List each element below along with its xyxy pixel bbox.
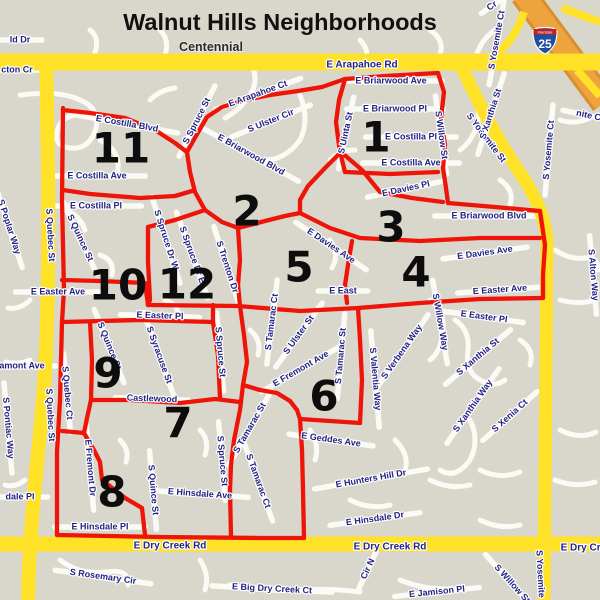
street-label: E East: [329, 285, 357, 295]
region-number: 3: [376, 203, 405, 252]
street-label: E Briarwood Ave: [355, 75, 426, 85]
map-title: Walnut Hills Neighborhoods: [123, 9, 437, 35]
shield-banner: Interstate: [538, 30, 553, 34]
street-label: E Briarwood Blvd: [451, 210, 526, 220]
region-number: 11: [92, 124, 150, 173]
street-label: dale Pl: [5, 491, 34, 501]
street-label: E Costilla Pl: [385, 131, 437, 141]
street-label: ld Dr: [10, 34, 31, 44]
region-number: 5: [284, 243, 313, 292]
street-label: amont Ave: [0, 360, 45, 370]
street-label: E Arapahoe Rd: [326, 60, 397, 71]
region-number: 7: [163, 399, 192, 448]
map-image: Interstate 25 E Arapahoe RdE Arapahoe Ct…: [0, 0, 600, 600]
shield-number: 25: [538, 37, 552, 51]
region-number: 10: [89, 261, 147, 310]
city-label: Centennial: [179, 40, 243, 54]
region-number: 12: [158, 260, 216, 309]
region-number: 1: [361, 113, 390, 162]
street-label: cton Cr: [1, 64, 33, 74]
street-label: E Dry Creek Rd: [134, 541, 207, 552]
street-label: E Costilla Pl: [70, 200, 122, 210]
region-number: 2: [232, 187, 261, 236]
street-label: E Easter Pl: [136, 310, 183, 322]
walnut-hills-map: Interstate 25 E Arapahoe RdE Arapahoe Ct…: [0, 0, 600, 600]
region-number: 4: [401, 248, 430, 297]
street-label: E Hinsdale Pl: [71, 521, 128, 531]
street-label: E Easter Ave: [31, 286, 85, 296]
street-label: E Dry Creek Rd: [354, 542, 427, 553]
region-number: 9: [93, 349, 122, 398]
region-number: 6: [309, 372, 338, 421]
region-number: 8: [97, 468, 126, 517]
street-label: E Dry Creek Rd: [561, 543, 600, 554]
